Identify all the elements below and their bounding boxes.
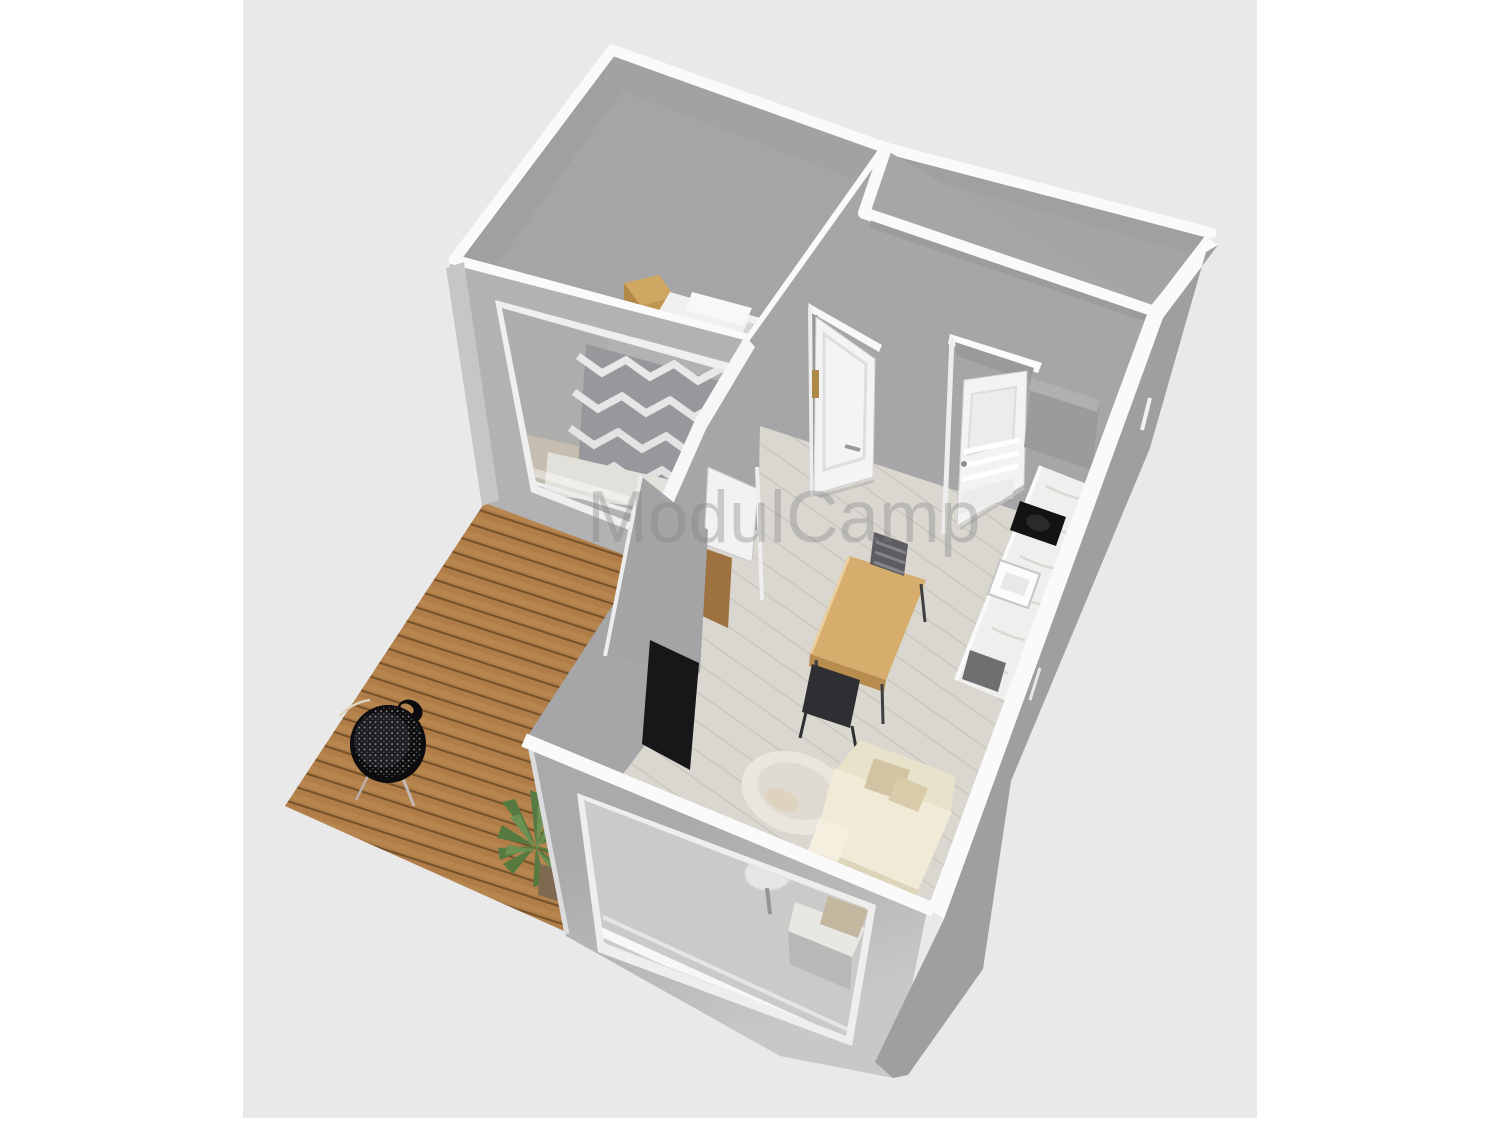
svg-text:ModulCamp: ModulCamp xyxy=(587,477,981,558)
